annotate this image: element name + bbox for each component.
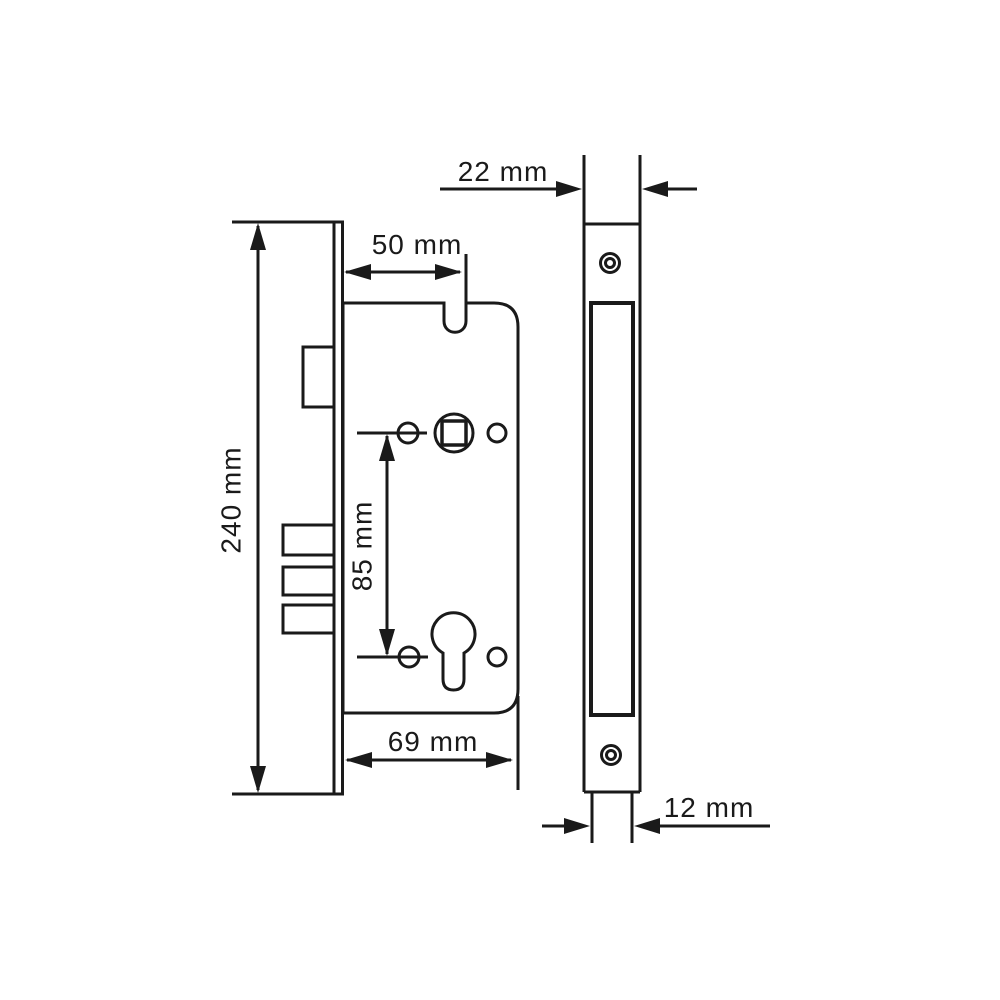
arrow-right-icon: [564, 818, 590, 834]
dimension-total-height: 240 mm: [215, 223, 266, 793]
screw-hole-bottom: [602, 746, 621, 765]
case-thickness-label: 12 mm: [664, 792, 755, 823]
latch-bolt: [303, 347, 334, 407]
dimension-hole-spacing: 85 mm: [346, 434, 395, 656]
arrow-left-icon: [634, 818, 660, 834]
spindle-square-hole: [442, 421, 466, 445]
arrow-up-icon: [250, 223, 266, 250]
arrow-right-icon: [556, 181, 582, 197]
deadbolt-bolt-1: [283, 525, 334, 555]
dimension-faceplate-width: 22 mm: [440, 156, 697, 197]
dimension-case-thickness: 12 mm: [542, 792, 770, 834]
hole-spacing-label: 85 mm: [346, 501, 377, 592]
screw-hole-inner: [607, 751, 616, 760]
screw-hole-top: [601, 254, 620, 273]
arrow-up-icon: [379, 434, 395, 461]
lock-case-slot: [591, 303, 633, 715]
body-depth-label: 69 mm: [388, 726, 479, 757]
fixing-hole-top-right: [488, 424, 506, 442]
drawing-canvas: 240 mm 50 mm 85 mm 69 mm: [0, 0, 1000, 1000]
faceplate-edge: [334, 222, 343, 794]
arrow-left-icon: [345, 752, 372, 768]
total-height-label: 240 mm: [215, 446, 246, 553]
arrow-right-icon: [435, 264, 462, 280]
arrow-left-icon: [642, 181, 668, 197]
dimension-backset: 50 mm: [344, 229, 466, 302]
cylinder-row: [357, 613, 506, 690]
dimension-body-depth: 69 mm: [345, 696, 518, 790]
backset-label: 50 mm: [372, 229, 463, 260]
screw-hole-inner: [606, 259, 615, 268]
arrow-down-icon: [379, 629, 395, 656]
mortise-lock-dimension-drawing: 240 mm 50 mm 85 mm 69 mm: [0, 0, 1000, 1000]
fixing-hole-bottom-right: [488, 648, 506, 666]
screw-hole-outer: [601, 254, 620, 273]
deadbolt-bolt-3: [283, 605, 334, 633]
spindle-row: [357, 414, 506, 452]
faceplate-width-label: 22 mm: [458, 156, 549, 187]
screw-hole-outer: [602, 746, 621, 765]
deadbolt: [283, 525, 334, 633]
arrow-left-icon: [344, 264, 371, 280]
euro-cylinder-hole: [432, 613, 475, 690]
arrow-right-icon: [486, 752, 513, 768]
faceplate-front-view: [584, 155, 640, 843]
arrow-down-icon: [250, 766, 266, 793]
deadbolt-bolt-2: [283, 567, 334, 595]
